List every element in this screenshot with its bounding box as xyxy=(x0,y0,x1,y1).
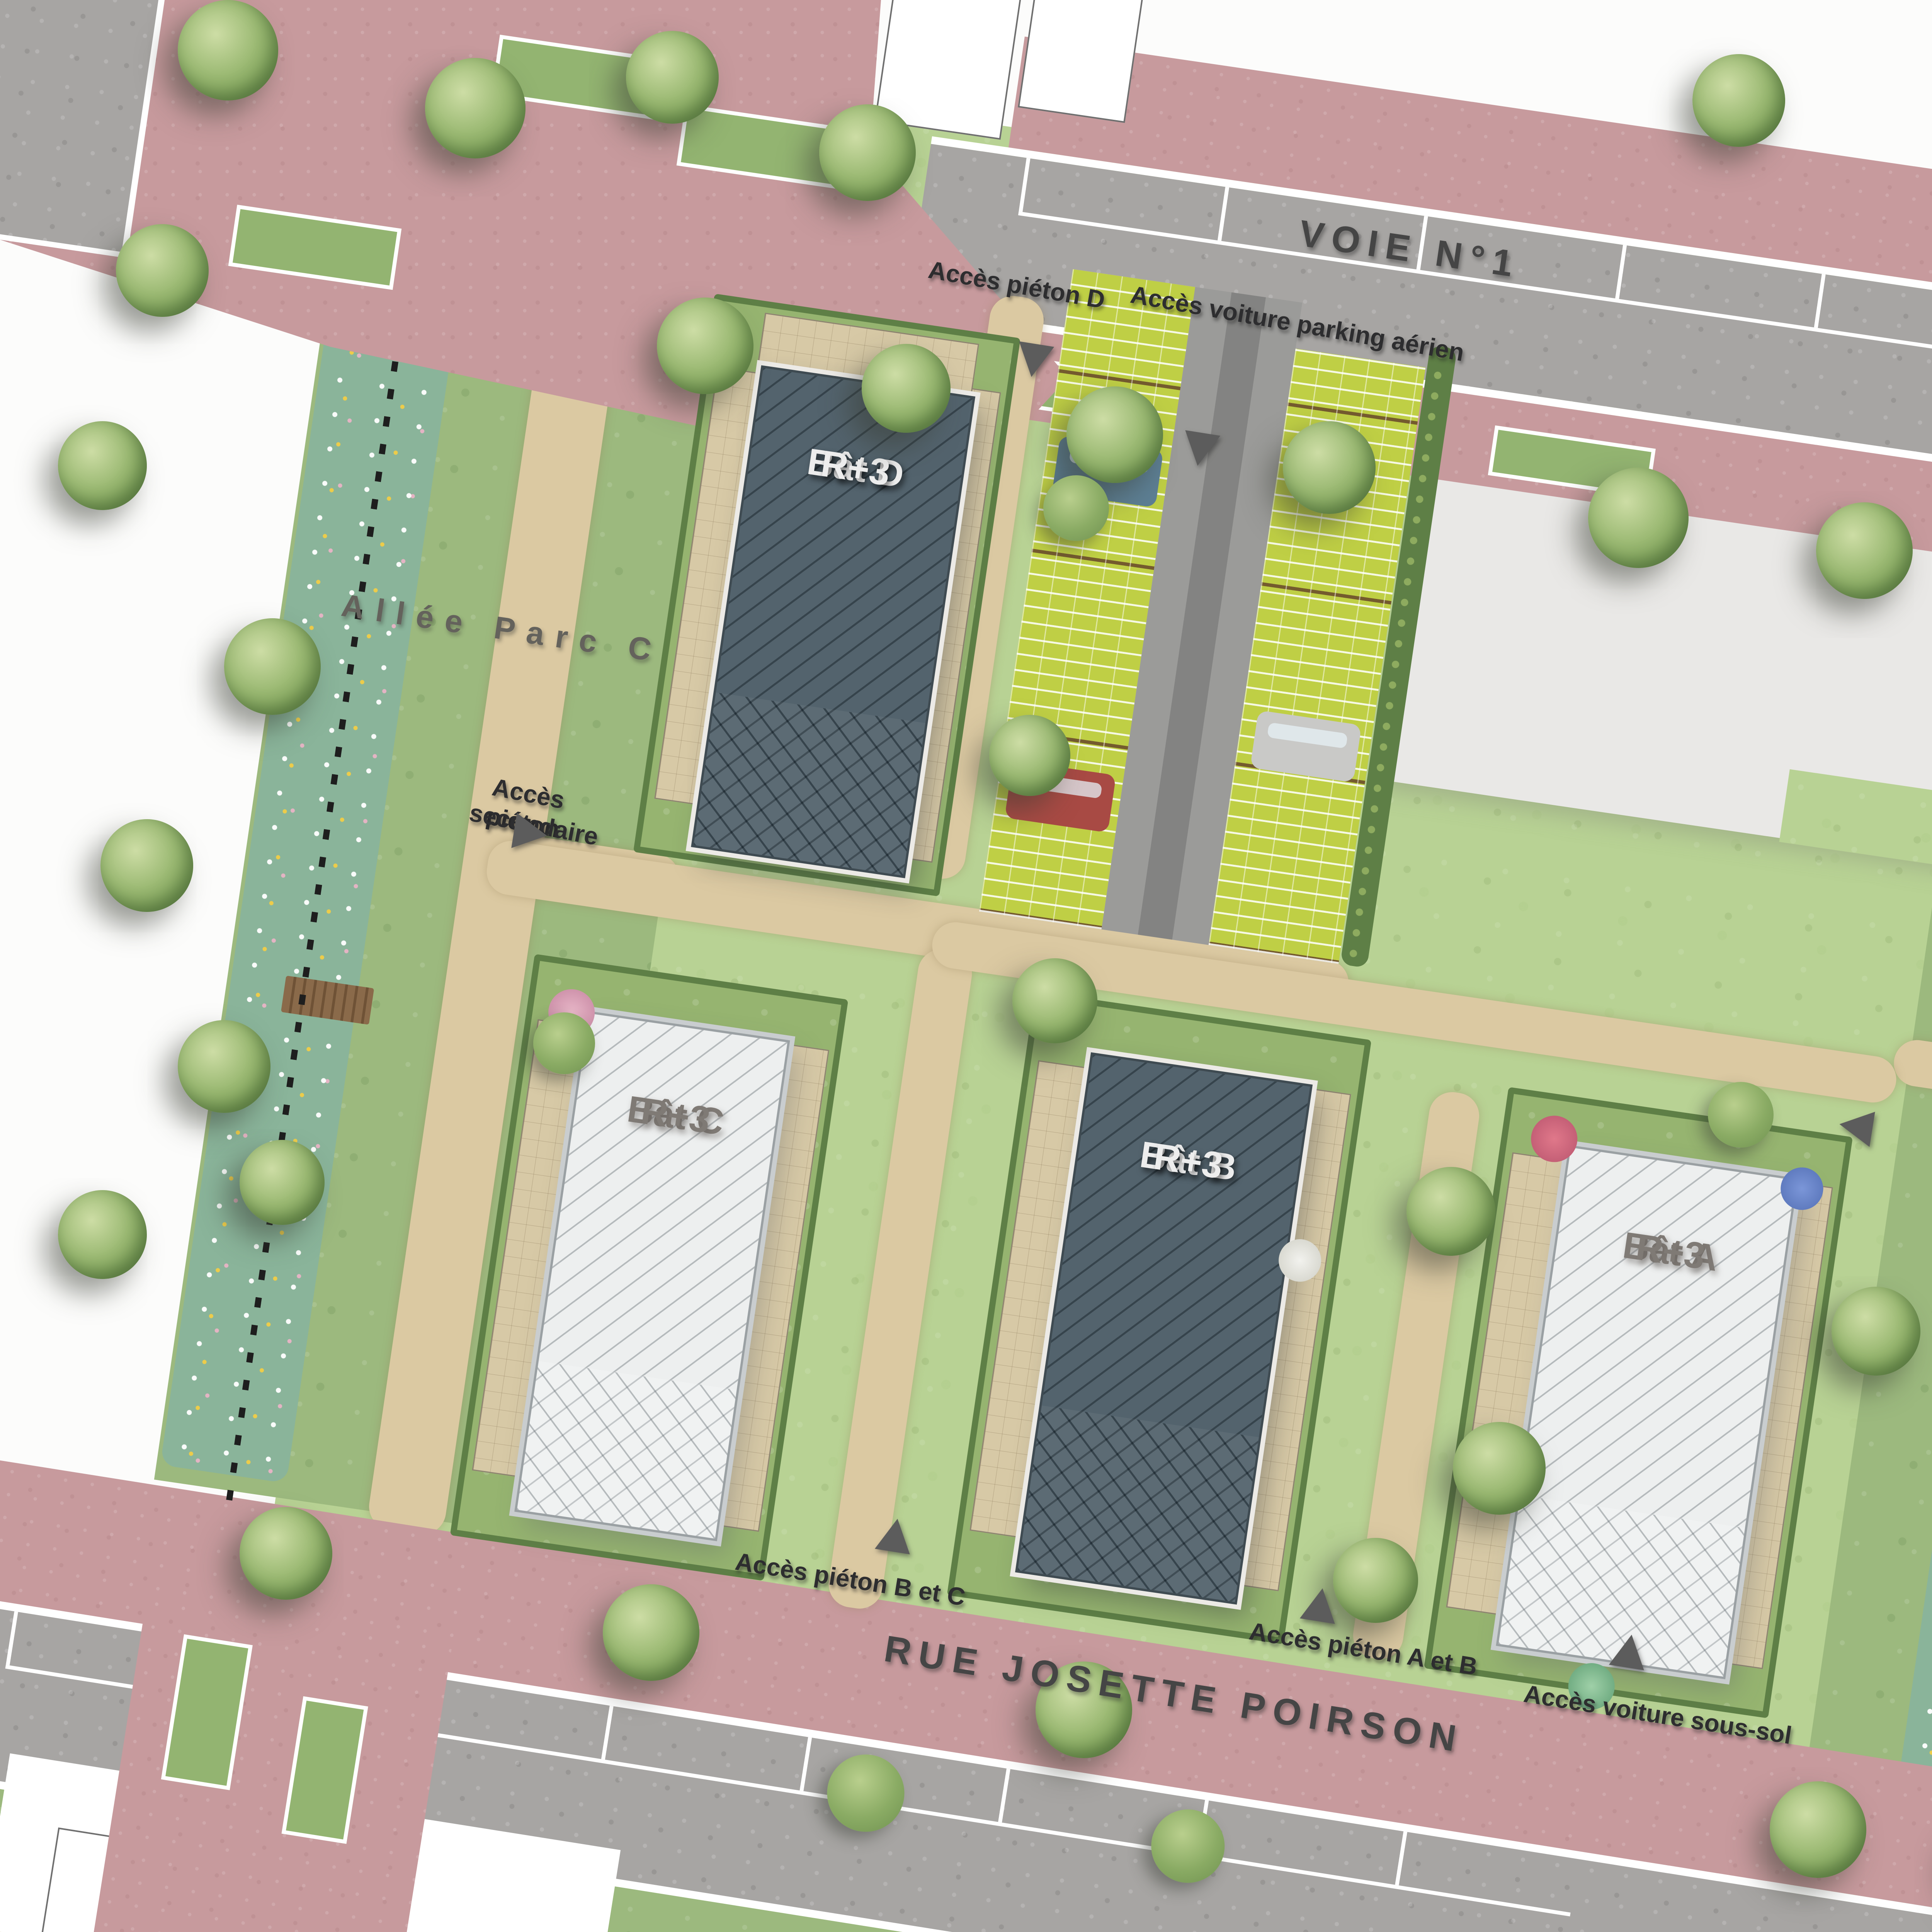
bush xyxy=(1708,1082,1774,1148)
access-arrow-secondaire-right xyxy=(1837,1107,1875,1147)
building-floors: R+3 xyxy=(819,445,893,492)
tree xyxy=(1832,1287,1920,1376)
tree xyxy=(58,1190,147,1279)
access-arrow-voiture-soussol xyxy=(1609,1632,1649,1670)
building-floors: R+3 xyxy=(639,1092,713,1139)
tree-planter xyxy=(228,205,402,290)
tree xyxy=(626,31,719,124)
tree xyxy=(240,1507,332,1600)
tree xyxy=(1012,958,1097,1043)
tree xyxy=(178,0,278,100)
cadastral-building xyxy=(1018,0,1146,123)
tree xyxy=(1770,1781,1866,1878)
tree xyxy=(1588,468,1689,568)
building-floors: R+3 xyxy=(1151,1138,1225,1185)
access-arrow-secondaire-left xyxy=(511,813,549,853)
tree xyxy=(989,715,1070,796)
tree xyxy=(1283,421,1376,514)
building-a-label: Bât A R+3 xyxy=(1561,1217,1786,1250)
tree xyxy=(100,819,193,912)
tree xyxy=(1816,502,1913,599)
tree xyxy=(240,1140,325,1225)
tree xyxy=(58,421,147,510)
tree-planter xyxy=(161,1634,253,1790)
building-d-label: Bât D R+3 xyxy=(753,435,963,465)
access-arrow-pieton-bc xyxy=(875,1516,915,1554)
access-arrow-pieton-d xyxy=(1014,341,1054,379)
tree xyxy=(1453,1422,1546,1515)
bush xyxy=(533,1012,595,1074)
tree xyxy=(425,58,526,158)
access-arrow-voiture-aerien xyxy=(1180,430,1220,468)
tree xyxy=(1333,1538,1418,1623)
tree xyxy=(224,618,321,715)
tree xyxy=(862,344,951,433)
building-b-label: Bât B R+3 xyxy=(1082,1127,1299,1159)
access-arrow-pieton-ab xyxy=(1300,1585,1340,1624)
tree xyxy=(1066,386,1163,483)
tree-planter xyxy=(282,1696,368,1844)
tree xyxy=(657,298,753,394)
site-plan: Bât D R+3 Bât C R+3 Bât B R+3 xyxy=(0,0,1932,1932)
tree xyxy=(1406,1167,1495,1256)
building-floors: R+3 xyxy=(1634,1228,1708,1275)
building-c-label: Bât C R+3 xyxy=(579,1083,777,1112)
bush xyxy=(1043,475,1109,541)
tree xyxy=(603,1584,699,1681)
promenade xyxy=(88,1593,452,1932)
tree xyxy=(116,224,209,317)
tree xyxy=(178,1020,270,1113)
tree xyxy=(819,104,916,201)
tree xyxy=(1692,54,1785,147)
